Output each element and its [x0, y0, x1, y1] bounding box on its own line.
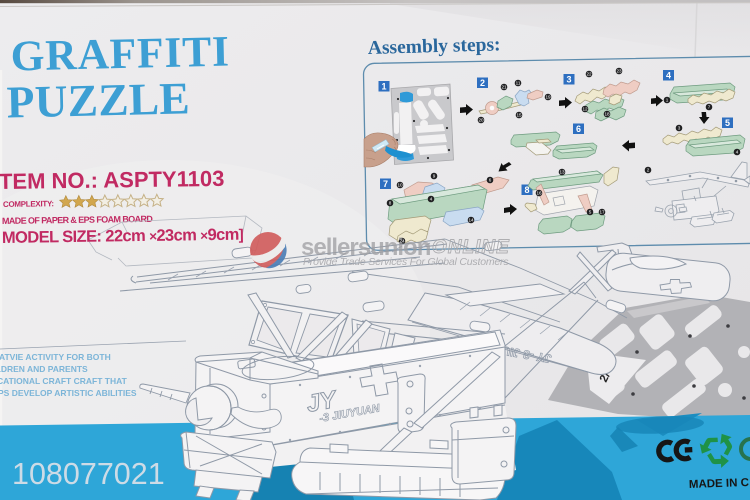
svg-text:7: 7: [708, 105, 711, 110]
svg-text:4: 4: [430, 197, 433, 202]
svg-text:10: 10: [397, 183, 403, 188]
svg-text:9: 9: [433, 174, 436, 179]
svg-text:6: 6: [489, 178, 492, 183]
svg-text:15: 15: [516, 113, 522, 118]
svg-text:20: 20: [478, 118, 484, 123]
svg-text:1: 1: [381, 82, 386, 92]
svg-text:16: 16: [536, 191, 542, 196]
svg-text:12: 12: [582, 107, 588, 112]
svg-text:2: 2: [480, 78, 485, 88]
svg-text:CHILDREN AND PARENTS: CHILDREN AND PARENTS: [0, 364, 88, 374]
svg-text:2: 2: [647, 168, 650, 173]
svg-text:3: 3: [678, 126, 681, 131]
svg-text:17: 17: [599, 210, 605, 215]
svg-text:Assembly steps:: Assembly steps:: [368, 34, 501, 59]
svg-text:GRAFFITI: GRAFFITI: [10, 28, 230, 81]
svg-text:22: 22: [586, 72, 592, 77]
svg-text:6: 6: [576, 124, 581, 134]
svg-text:1: 1: [666, 98, 669, 103]
svg-text:21: 21: [501, 85, 507, 90]
svg-text:ITEM NO.: ASPTY1103: ITEM NO.: ASPTY1103: [0, 166, 225, 194]
svg-text:4: 4: [736, 150, 739, 155]
svg-text:EDUCATIONAL CRAFT CRAFT THAT: EDUCATIONAL CRAFT CRAFT THAT: [0, 376, 128, 386]
svg-text:CREATVIE ACTIVITY FOR BOTH: CREATVIE ACTIVITY FOR BOTH: [0, 352, 111, 362]
svg-text:5: 5: [589, 210, 592, 215]
svg-text:5: 5: [725, 118, 730, 128]
svg-text:13: 13: [559, 170, 565, 175]
svg-text:7: 7: [383, 179, 388, 189]
svg-text:18: 18: [604, 112, 610, 117]
svg-text:MADE OF PAPER & EPS FOAM BOARD: MADE OF PAPER & EPS FOAM BOARD: [2, 214, 154, 226]
svg-text:3: 3: [566, 75, 571, 85]
svg-text:ONLINE: ONLINE: [432, 237, 510, 258]
svg-text:19: 19: [545, 95, 551, 100]
svg-text:MADE IN C: MADE IN C: [689, 477, 749, 491]
svg-text:4: 4: [666, 71, 671, 81]
svg-text:PUZZLE: PUZZLE: [6, 72, 190, 127]
svg-text:14: 14: [468, 218, 474, 223]
svg-text:Provide Trade Services For Glo: Provide Trade Services For Global Custom…: [303, 256, 509, 268]
svg-text:108077021: 108077021: [12, 457, 165, 491]
svg-text:HELPS DEVELOP ARTISTIC ABILITI: HELPS DEVELOP ARTISTIC ABILITIES: [0, 388, 137, 398]
svg-text:11: 11: [516, 81, 521, 86]
svg-text:COMPLEXITY:: COMPLEXITY:: [3, 199, 54, 209]
svg-text:8: 8: [389, 201, 392, 206]
svg-text:MODEL SIZE: 22cm ×23cm ×9cm]: MODEL SIZE: 22cm ×23cm ×9cm]: [2, 226, 244, 247]
svg-text:23: 23: [616, 69, 622, 74]
